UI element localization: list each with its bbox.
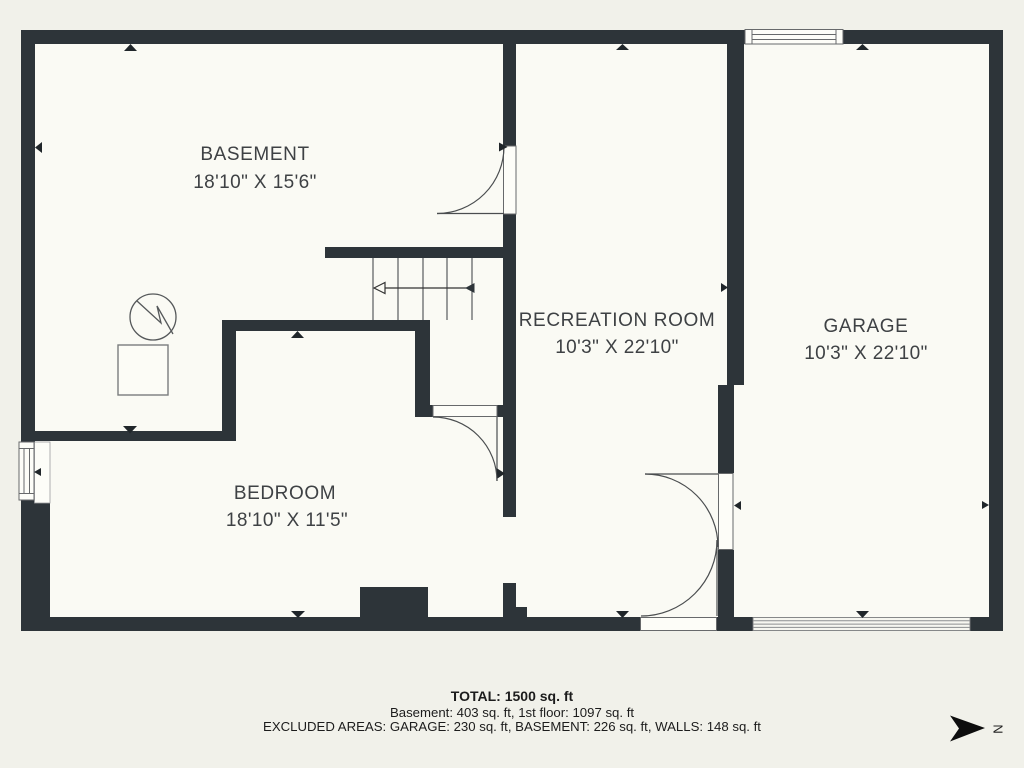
closet-wall (415, 320, 430, 417)
floor-areas-text: Basement: 403 sq. ft, 1st floor: 1097 sq… (390, 705, 634, 720)
room-label-garage: GARAGE (824, 316, 909, 337)
window-cap (836, 30, 843, 45)
wall-segment (503, 607, 527, 617)
exterior-door-frame (641, 618, 717, 631)
north-arrow-shape (950, 716, 985, 742)
wall-segment (30, 431, 236, 441)
garage-entry-door-frame (719, 474, 734, 550)
stair-wall (325, 247, 516, 258)
wall-segment (21, 617, 640, 631)
garage-divider-wall (718, 385, 734, 473)
wall-segment (717, 617, 753, 631)
closet-door-frame (433, 406, 497, 417)
closet-wall (497, 405, 503, 417)
wall-segment (970, 617, 1003, 631)
wall-segment (21, 30, 35, 442)
window-frame (745, 30, 843, 45)
room-dims-basement: 18'10" X 15'6" (193, 172, 317, 193)
total-area-text: TOTAL: 1500 sq. ft (451, 688, 574, 704)
window-frame (19, 442, 34, 500)
north-arrow-icon: N (950, 716, 1006, 742)
wall-segment (222, 320, 236, 441)
floor-plan-page: BASEMENT 18'10" X 15'6" RECREATION ROOM … (0, 0, 1024, 768)
wall-segment (503, 44, 516, 146)
window-cap (745, 30, 752, 45)
room-dims-bedroom: 18'10" X 11'5" (226, 510, 348, 531)
wall-segment (222, 320, 415, 331)
garage-window-icon (745, 30, 843, 45)
floor-plan-canvas: BASEMENT 18'10" X 15'6" RECREATION ROOM … (0, 0, 1024, 768)
wall-segment (21, 30, 745, 44)
wall-segment (21, 500, 50, 631)
room-dims-garage: 10'3" X 22'10" (804, 343, 928, 364)
utility-box-icon (118, 345, 168, 395)
chimney-bump (360, 587, 428, 617)
wall-segment (989, 30, 1003, 631)
wall-segment (503, 214, 516, 517)
room-label-bedroom: BEDROOM (234, 483, 336, 504)
north-label: N (991, 724, 1006, 733)
garage-divider-wall (727, 44, 744, 385)
wall-segment (843, 30, 1003, 44)
garage-divider-wall (718, 550, 734, 617)
bedroom-window-icon (19, 442, 50, 503)
basement-door-frame (504, 146, 517, 214)
room-label-recreation: RECREATION ROOM (519, 310, 716, 331)
garage-door-icon (753, 618, 970, 631)
window-cap (19, 442, 34, 449)
excluded-areas-text: EXCLUDED AREAS: GARAGE: 230 sq. ft, BASE… (263, 719, 761, 734)
closet-wall (415, 405, 433, 417)
room-label-basement: BASEMENT (200, 144, 309, 165)
window-cap (19, 494, 34, 501)
room-dims-recreation: 10'3" X 22'10" (555, 337, 679, 358)
area-summary: TOTAL: 1500 sq. ft Basement: 403 sq. ft,… (263, 688, 761, 734)
